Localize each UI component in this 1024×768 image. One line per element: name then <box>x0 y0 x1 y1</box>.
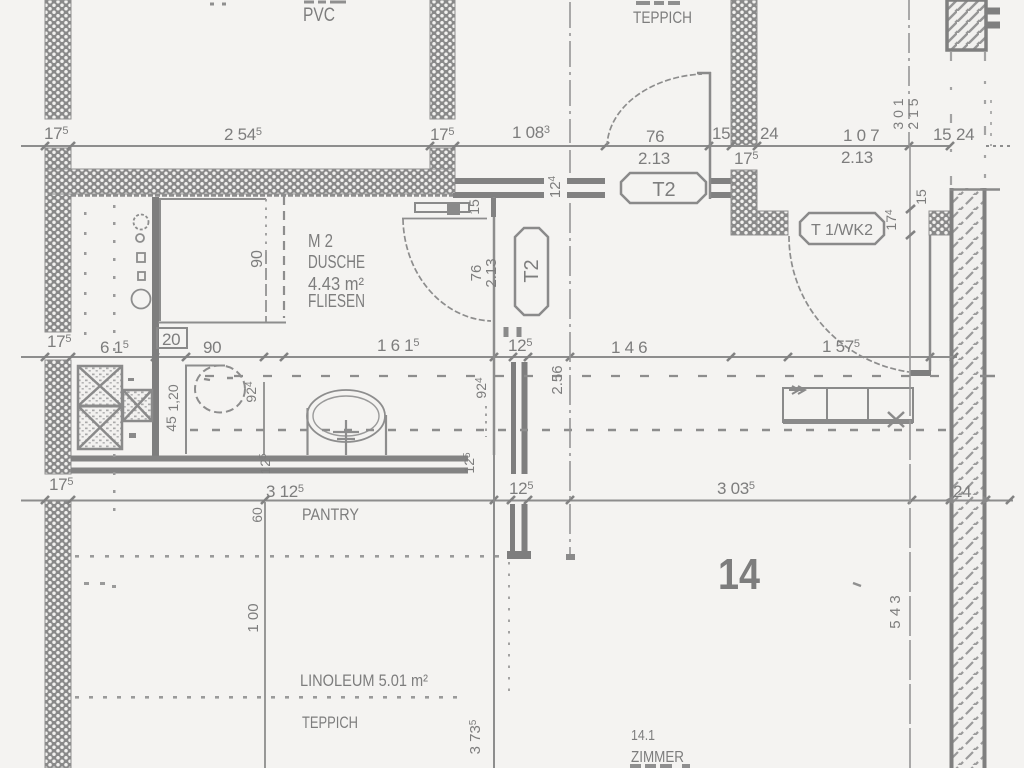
svg-text:2.13: 2.13 <box>841 148 873 167</box>
svg-text:T2: T2 <box>652 179 675 201</box>
svg-text:90: 90 <box>203 338 221 357</box>
svg-text:M 2: M 2 <box>308 231 333 251</box>
svg-text:15: 15 <box>712 124 730 143</box>
svg-text:PVC: PVC <box>303 5 335 26</box>
svg-text:1 00: 1 00 <box>245 603 262 632</box>
svg-text:24: 24 <box>956 125 974 144</box>
svg-text:DUSCHE: DUSCHE <box>308 252 365 272</box>
svg-text:15: 15 <box>933 125 951 144</box>
svg-text:ZIMMER: ZIMMER <box>631 749 684 766</box>
svg-text:76: 76 <box>646 127 664 146</box>
svg-text:T 1/WK2: T 1/WK2 <box>811 222 873 239</box>
svg-text:2.13: 2.13 <box>638 149 670 168</box>
svg-text:60: 60 <box>249 507 265 523</box>
svg-text:15: 15 <box>466 199 482 215</box>
svg-text:LINOLEUM 5.01 m²: LINOLEUM 5.01 m² <box>300 671 428 690</box>
svg-text:2.56: 2.56 <box>549 365 566 394</box>
svg-text:FLIESEN: FLIESEN <box>308 291 365 311</box>
svg-text:45: 45 <box>163 416 179 432</box>
svg-text:24: 24 <box>953 482 971 501</box>
svg-text:TEPPICH: TEPPICH <box>302 713 358 732</box>
svg-text:90: 90 <box>249 250 266 268</box>
svg-text:1 0 7: 1 0 7 <box>843 126 879 145</box>
svg-text:24: 24 <box>760 124 778 143</box>
svg-text:14: 14 <box>718 550 760 599</box>
svg-text:15: 15 <box>913 189 929 205</box>
svg-text:14.1: 14.1 <box>631 727 655 744</box>
svg-text:2 1 5: 2 1 5 <box>905 98 921 129</box>
svg-text:PANTRY: PANTRY <box>302 505 359 524</box>
svg-text:1 4 6: 1 4 6 <box>611 338 647 357</box>
svg-text:2.13: 2.13 <box>483 258 500 287</box>
svg-text:1 6 15: 1 6 15 <box>377 336 419 355</box>
svg-text:T2: T2 <box>521 259 543 282</box>
svg-text:3 0 1: 3 0 1 <box>890 98 906 129</box>
svg-text:20: 20 <box>162 330 180 349</box>
svg-text:5 4 3: 5 4 3 <box>887 595 904 628</box>
svg-text:TEPPICH: TEPPICH <box>633 8 692 27</box>
svg-text:1,20: 1,20 <box>165 384 181 411</box>
